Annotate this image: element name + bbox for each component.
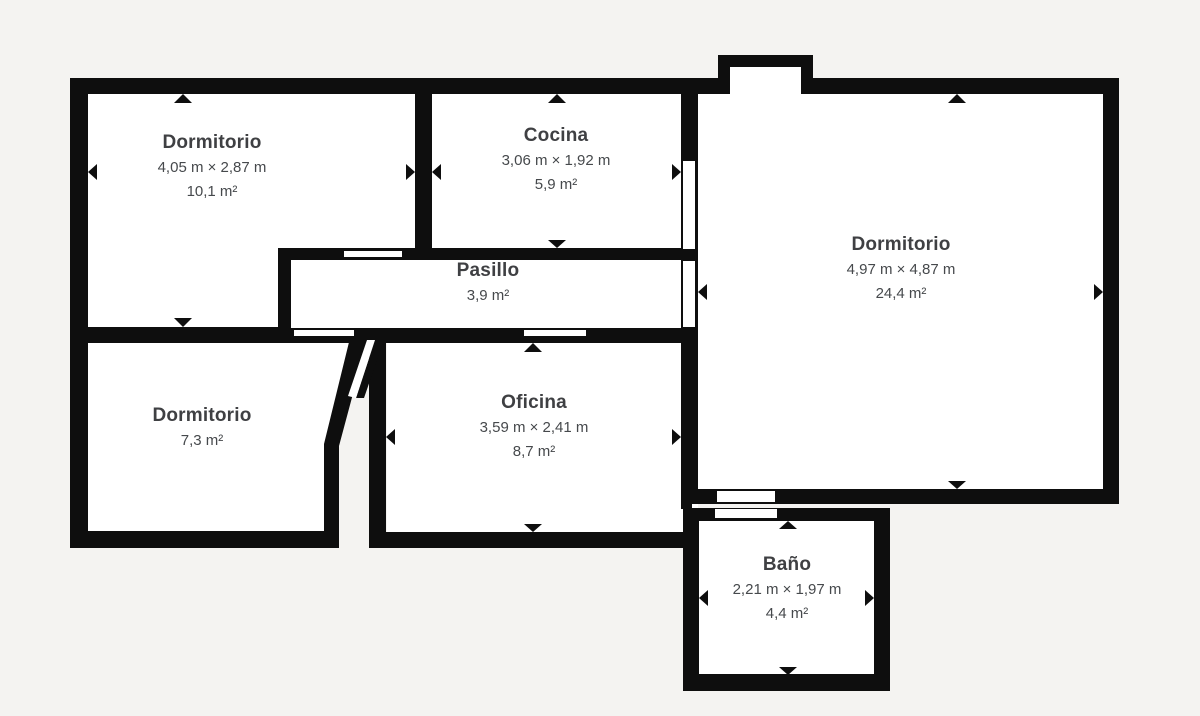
door-pasillo-dormitorio3: [294, 330, 354, 336]
room-area: 10,1 m²: [158, 180, 267, 204]
wall-protrusion-left: [718, 55, 730, 94]
room-floor-alcove: [730, 66, 801, 96]
room-dimensions: 3,59 m × 2,41 m: [480, 416, 589, 440]
room-area: 8,7 m²: [480, 440, 589, 464]
room-name: Baño: [733, 552, 842, 578]
room-area: 5,9 m²: [502, 173, 611, 197]
room-label-dormitorio-2: Dormitorio 4,97 m × 4,87 m 24,4 m²: [847, 232, 956, 306]
room-area: 7,3 m²: [152, 429, 251, 453]
door-dormitorio2-bano-lower: [715, 509, 777, 518]
wall-outer-bottom-left: [70, 531, 337, 548]
door-dormitorio2-bano-upper: [717, 491, 775, 502]
room-area: 24,4 m²: [847, 282, 956, 306]
wall-bano-left: [683, 508, 699, 691]
wall-dormitorio1-cocina-divider: [415, 94, 432, 260]
wall-protrusion-top: [718, 55, 813, 67]
room-name: Dormitorio: [847, 232, 956, 258]
wall-outer-top-right: [813, 78, 1119, 94]
wall-outer-right: [1103, 78, 1119, 504]
room-label-dormitorio-1: Dormitorio 4,05 m × 2,87 m 10,1 m²: [158, 130, 267, 204]
door-cocina-dormitorio2: [683, 161, 695, 249]
wall-bano-bottom: [683, 674, 890, 691]
room-label-oficina: Oficina 3,59 m × 2,41 m 8,7 m²: [480, 390, 589, 464]
room-area: 4,4 m²: [733, 602, 842, 626]
wall-bano-top: [683, 508, 890, 521]
door-dormitorio1-pasillo: [344, 251, 402, 257]
room-dimensions: 4,97 m × 4,87 m: [847, 258, 956, 282]
room-label-bano: Baño 2,21 m × 1,97 m 4,4 m²: [733, 552, 842, 626]
wall-oficina-bottom: [370, 532, 698, 548]
room-name: Cocina: [502, 123, 611, 149]
room-name: Pasillo: [457, 258, 520, 284]
wall-outer-top-left: [70, 78, 718, 94]
floor-plan: Dormitorio 4,05 m × 2,87 m 10,1 m² Cocin…: [0, 0, 1200, 716]
wall-dormitorio1-bottom: [70, 327, 291, 343]
wall-protrusion-right: [801, 55, 813, 94]
room-name: Oficina: [480, 390, 589, 416]
room-label-cocina: Cocina 3,06 m × 1,92 m 5,9 m²: [502, 123, 611, 197]
door-pasillo-oficina: [524, 330, 586, 336]
room-dimensions: 2,21 m × 1,97 m: [733, 578, 842, 602]
floor-plan-drawing: [0, 0, 1200, 716]
room-label-dormitorio-3: Dormitorio 7,3 m²: [152, 403, 251, 453]
room-dimensions: 4,05 m × 2,87 m: [158, 156, 267, 180]
room-label-pasillo: Pasillo 3,9 m²: [457, 258, 520, 308]
room-dimensions: 3,06 m × 1,92 m: [502, 149, 611, 173]
wall-outer-left: [70, 78, 88, 548]
room-name: Dormitorio: [152, 403, 251, 429]
door-pasillo-dormitorio2: [683, 261, 695, 327]
wall-bano-right: [874, 508, 890, 691]
room-name: Dormitorio: [158, 130, 267, 156]
room-area: 3,9 m²: [457, 284, 520, 308]
